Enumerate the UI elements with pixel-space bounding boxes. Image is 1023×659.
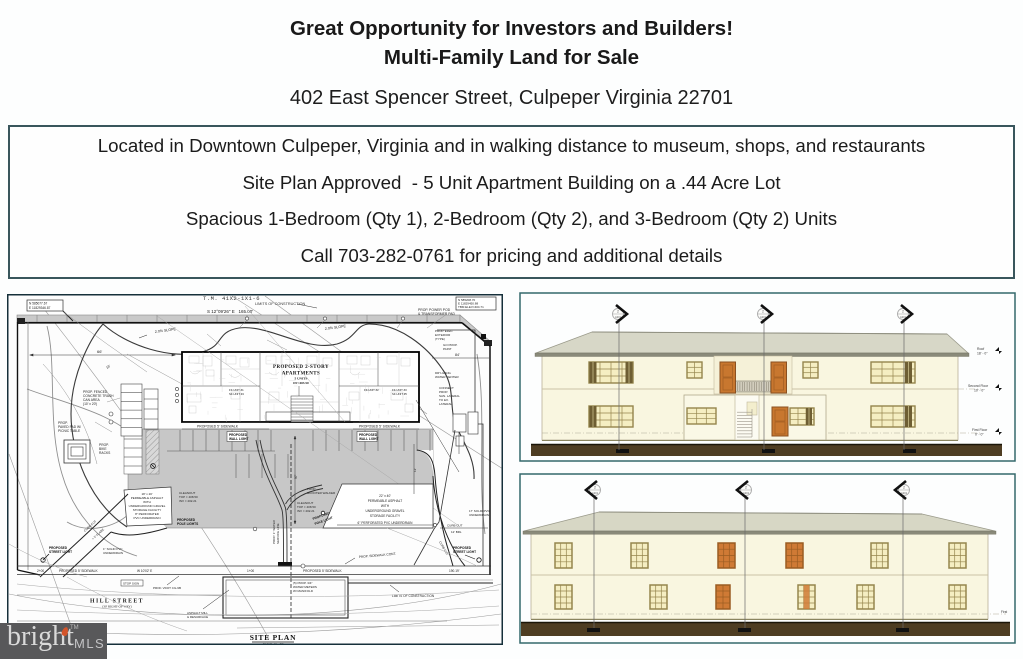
svg-text:T.M. 41X2-1X1-6: T.M. 41X2-1X1-6 [203,295,260,302]
svg-text:E 11829346.87: E 11829346.87 [29,306,51,310]
svg-text:SCOOTER WALKER: SCOOTER WALKER [307,491,336,495]
svg-text:W/ MANIFOLD: W/ MANIFOLD [293,589,314,593]
svg-text:FF-UNIT #2: FF-UNIT #2 [364,388,379,392]
svg-text:UNDERDRAIN: UNDERDRAIN [103,551,123,555]
svg-text:84': 84' [455,353,460,357]
svg-text:S 12°09'26" E 165.00': S 12°09'26" E 165.00' [207,309,253,314]
svg-text:18' - 0": 18' - 0" [977,352,988,356]
svg-text:66': 66' [97,349,102,354]
svg-text:2: 2 [617,310,619,314]
svg-text:PROPOSED 2-STORY: PROPOSED 2-STORY [273,365,329,370]
svg-text:PVC UNDERDRAIN: PVC UNDERDRAIN [133,516,160,520]
svg-text:INV = 402.21: INV = 402.21 [297,509,315,513]
svg-text:STORAGE FACILITY: STORAGE FACILITY [370,514,401,518]
svg-text:(10' x 20'): (10' x 20') [83,402,97,406]
svg-text:WALL LIGHT: WALL LIGHT [229,437,248,441]
svg-text:2: 2 [745,486,747,490]
svg-text:INV = 402.21: INV = 402.21 [179,499,197,503]
svg-text:2: 2 [902,310,904,314]
svg-text:UNDERGROUND GRAVEL: UNDERGROUND GRAVEL [365,509,404,513]
svg-text:PERMEABLE ASPHALT: PERMEABLE ASPHALT [368,499,403,503]
svg-text:10' - 0": 10' - 0" [974,389,985,393]
svg-text:First: First [1001,610,1007,614]
svg-text:2+00: 2+00 [37,569,44,573]
svg-text:SF-UNIT #5: SF-UNIT #5 [392,392,407,396]
svg-text:N 585077.67: N 585077.67 [29,302,47,306]
svg-text:WATER CENTER: WATER CENTER [435,375,459,379]
svg-text:SERVICE LINE: SERVICE LINE [276,523,280,544]
svg-text:RACKS: RACKS [99,451,111,455]
svg-text:STOP SIGN: STOP SIGN [123,582,139,586]
svg-text:6" PERFORATED PVC UNDERDRAIN: 6" PERFORATED PVC UNDERDRAIN [358,521,414,525]
svg-text:WITH: WITH [381,504,390,508]
svg-text:FF=403.50: FF=403.50 [293,381,309,385]
svg-text:CURB CUT: CURB CUT [447,524,463,528]
svg-text:PROF. VDOT CG-9B: PROF. VDOT CG-9B [153,586,181,590]
svg-text:PROPOSED 5' SIDEWALK: PROPOSED 5' SIDEWALK [303,569,342,573]
svg-text:22' x 40': 22' x 40' [379,494,391,498]
svg-text:12' BRL: 12' BRL [451,530,462,534]
svg-text:190.19': 190.19' [449,569,460,573]
svg-text:1+00: 1+00 [247,569,254,573]
svg-text:& TRANSFORMER PAD: & TRANSFORMER PAD [418,312,456,316]
svg-text:5 UNITS: 5 UNITS [295,377,308,381]
svg-text:(30' RIGHT-OF-WAY): (30' RIGHT-OF-WAY) [102,605,131,609]
svg-text:PAINT: PAINT [443,347,452,351]
svg-text:STREET LIGHT: STREET LIGHT [453,550,476,554]
svg-text:2: 2 [762,310,764,314]
svg-text:W 10'02' E: W 10'02' E [137,569,152,573]
svg-text:LATERAL: LATERAL [439,402,452,406]
svg-text:12': 12' [413,468,417,472]
svg-text:2: 2 [594,486,596,490]
svg-text:Roof: Roof [977,347,984,351]
svg-text:PROPOSED 5' SIDEWALK: PROPOSED 5' SIDEWALK [197,425,239,429]
svg-text:TBM ELEV=404.71: TBM ELEV=404.71 [458,305,484,309]
svg-text:(TYPE): (TYPE) [435,337,445,341]
svg-text:SF-UNIT #4: SF-UNIT #4 [229,392,244,396]
svg-text:WALL LIGHT: WALL LIGHT [359,437,378,441]
svg-text:0' - 0": 0' - 0" [975,433,984,437]
svg-text:PICNIC TABLE: PICNIC TABLE [58,429,81,433]
svg-text:PROPOSED 5' SIDEWALK: PROPOSED 5' SIDEWALK [359,425,401,429]
svg-text:PROPOSED 5' SIDEWALK: PROPOSED 5' SIDEWALK [59,569,98,573]
svg-text:97': 97' [294,474,298,479]
svg-text:& RESURFACE: & RESURFACE [187,615,208,619]
svg-text:UNDERDRAIN: UNDERDRAIN [469,513,489,517]
svg-text:POLE LIGHTS: POLE LIGHTS [177,522,198,526]
svg-text:SITE PLAN: SITE PLAN [250,633,297,642]
svg-text:STREET LIGHT: STREET LIGHT [49,550,72,554]
svg-text:Second Floor: Second Floor [968,384,989,388]
svg-text:2: 2 [903,486,905,490]
svg-text:First Floor: First Floor [972,428,988,432]
